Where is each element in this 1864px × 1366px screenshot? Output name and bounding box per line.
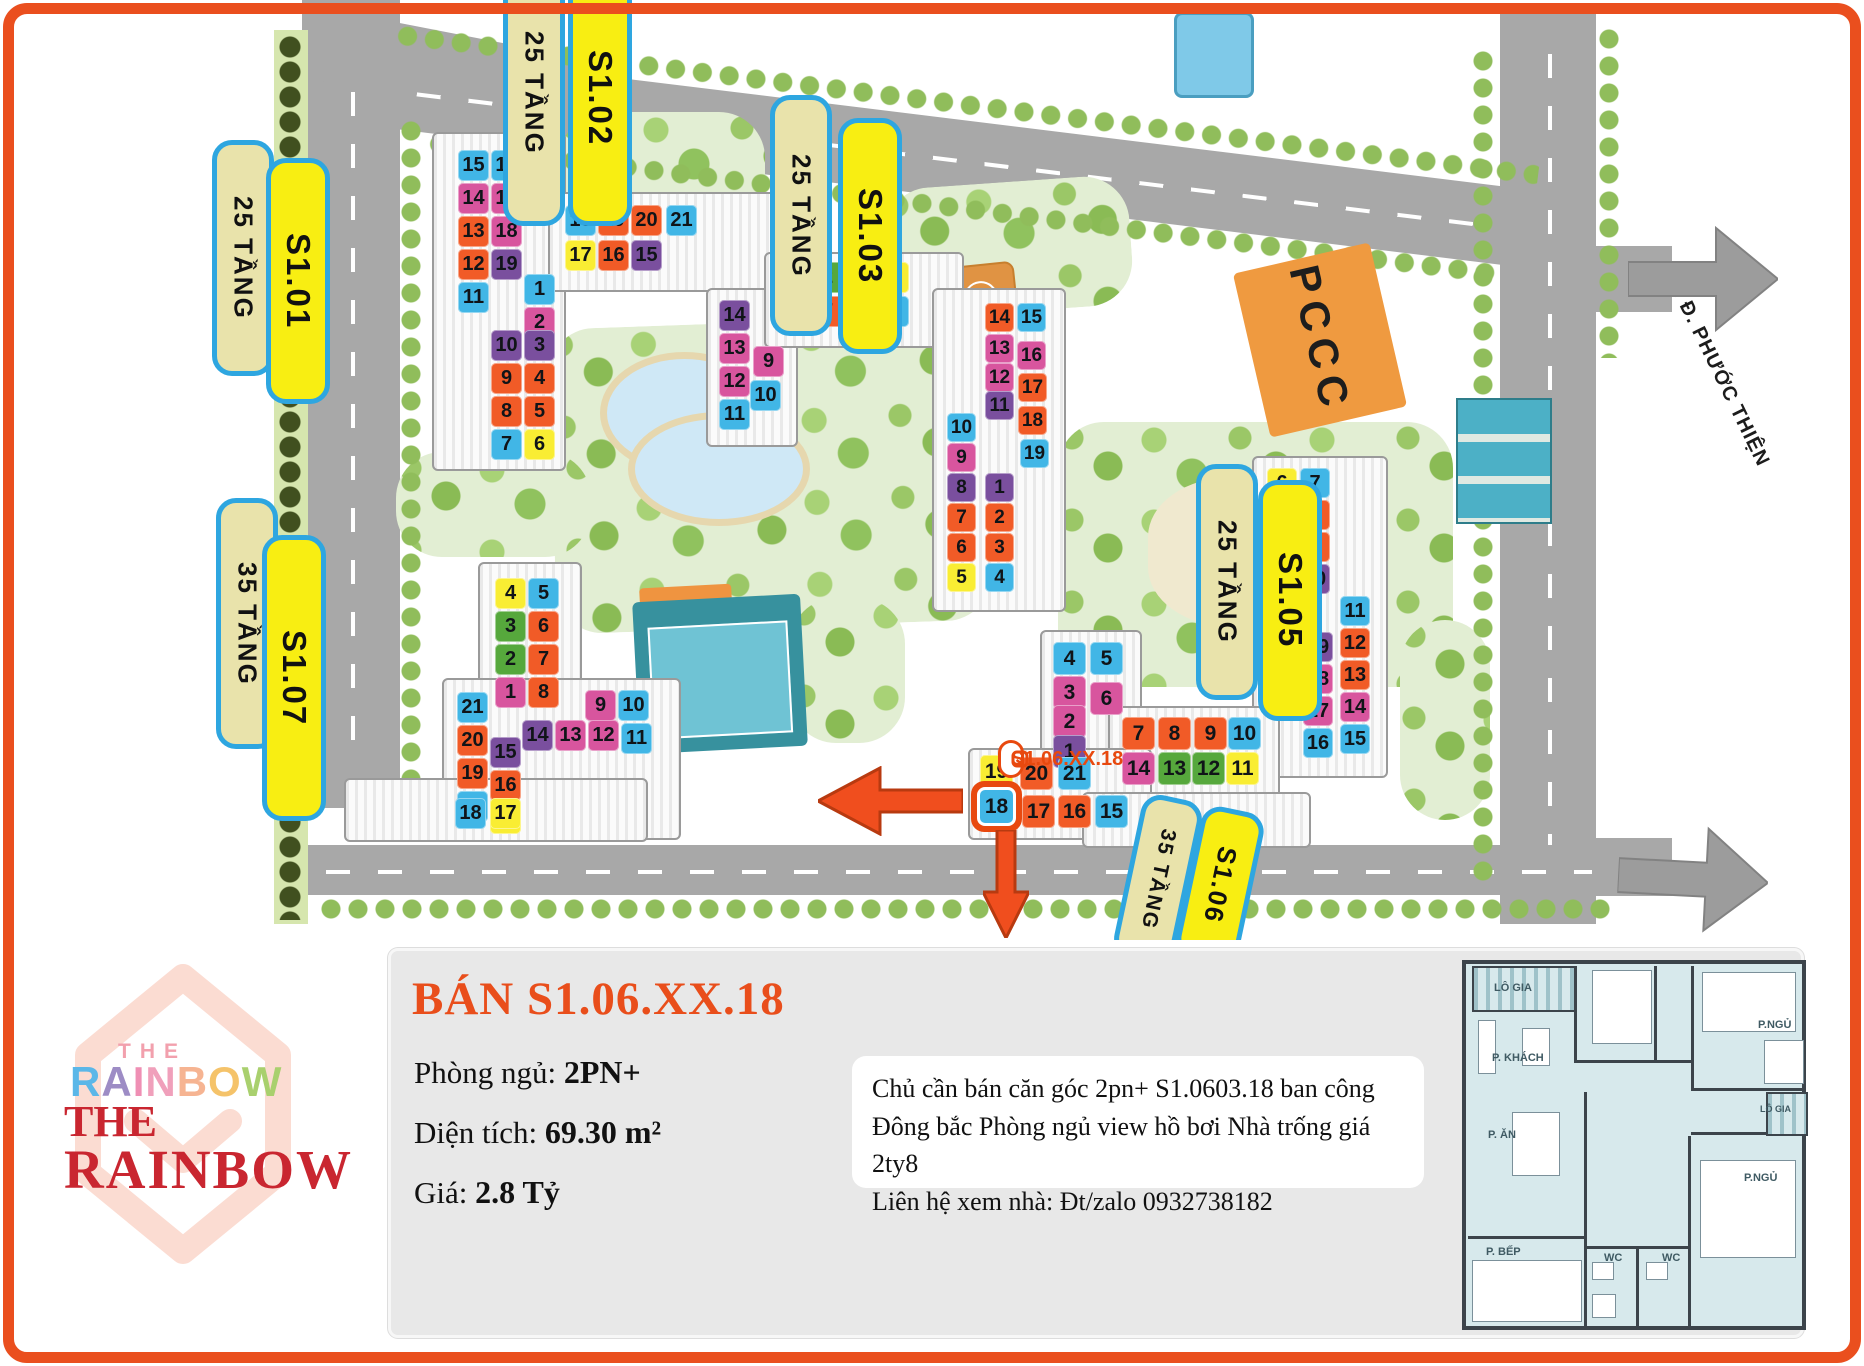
unit-tile-s105-13: 13: [1340, 660, 1370, 690]
unit-tile-s103-14: 14: [985, 303, 1014, 332]
listing-description: Chủ cần bán căn góc 2pn+ S1.0603.18 ban …: [852, 1056, 1424, 1188]
unit-tile-s101-19: 19: [491, 249, 522, 280]
wardrobe: [1764, 1040, 1804, 1084]
room-label: WC: [1662, 1252, 1680, 1264]
unit-tile-s107-2: 2: [495, 644, 526, 675]
unit-tile-s103-15: 15: [1017, 303, 1046, 332]
unit-tile-s107-14: 14: [522, 720, 553, 751]
unit-tile-s107-10: 10: [618, 690, 649, 721]
unit-tile-s102-21: 21: [666, 205, 697, 236]
unit-tile-s101-10: 10: [491, 330, 522, 361]
room-label: P.NGỦ: [1744, 1172, 1777, 1184]
unit-tile-s106-7: 7: [1122, 717, 1155, 750]
unit-tile-s103-7: 7: [947, 503, 976, 532]
unit-tile-s103-9: 9: [947, 443, 976, 472]
road-bottom: [296, 845, 1626, 895]
unit-tile-s106-14: 14: [1122, 752, 1155, 785]
unit-tile-s106-9: 9: [1194, 717, 1227, 750]
unit-tile-s107-12: 12: [588, 720, 619, 751]
washer: [1592, 1294, 1616, 1318]
description-line: Chủ cần bán căn góc 2pn+ S1.0603.18 ban …: [872, 1070, 1404, 1108]
label-s103-floors: 25 TẦNG: [770, 95, 832, 336]
listing-title: BÁN S1.06.XX.18: [412, 972, 785, 1026]
unit-tile-s106-16: 16: [1058, 795, 1091, 828]
wall: [1654, 966, 1657, 1060]
wall: [1584, 1092, 1587, 1330]
spec-value: 2PN+: [564, 1054, 641, 1090]
unit-tile-s103-16: 16: [1017, 341, 1046, 370]
spec-price: Giá: 2.8 Tỷ: [414, 1174, 560, 1211]
unit-tile-s105-14: 14: [1340, 692, 1370, 722]
wall: [1574, 1060, 1694, 1063]
unit-tile-s106-17: 17: [1022, 795, 1055, 828]
logo-letter: W: [242, 1058, 283, 1105]
unit-tile-s103-13: 13: [985, 334, 1014, 363]
room-label: P. BẾP: [1486, 1246, 1521, 1258]
unit-tile-s106-6: 6: [1090, 682, 1123, 715]
spec-label: Giá:: [414, 1175, 467, 1210]
unit-tile-s101-13: 13: [458, 216, 489, 247]
unit-tile-s106-13: 13: [1158, 752, 1191, 785]
tree-line-left-inner: [400, 120, 426, 780]
spec-label: Diện tích:: [414, 1115, 537, 1150]
logo-rainbow-big: RAINBOW: [64, 1138, 353, 1201]
wall: [1691, 1088, 1803, 1091]
unit-tile-s107-9: 9: [585, 690, 616, 721]
description-line: Đông bắc Phòng ngủ view hồ bơi Nhà trống…: [872, 1108, 1404, 1183]
label-s101-floors: 25 TẦNG: [212, 140, 274, 376]
unit-tile-s107-16: 16: [490, 770, 521, 801]
label-s103-name: S1.03: [838, 118, 902, 354]
logo-letter: O: [208, 1058, 242, 1105]
tree-line-bottom: [320, 898, 1610, 922]
room-label: LÔ GIA: [1494, 982, 1532, 994]
unit-tile-s102-14: 14: [719, 300, 750, 331]
unit-tile-s103-4: 4: [985, 563, 1014, 592]
unit-tile-s102-16: 16: [598, 240, 629, 271]
unit-tile-s107-19: 19: [457, 758, 488, 789]
room-label: WC: [1604, 1252, 1622, 1264]
unit-tile-s103-5: 5: [947, 563, 976, 592]
unit-tile-s107-15: 15: [490, 737, 521, 768]
unit-tile-s103-11: 11: [985, 391, 1014, 420]
spec-area: Diện tích: 69.30 m²: [414, 1114, 661, 1151]
room-label: P. KHÁCH: [1492, 1052, 1544, 1064]
bed-middle: [1592, 970, 1652, 1044]
unit-tile-s102-17: 17: [565, 240, 596, 271]
room-label: P. ĂN: [1488, 1129, 1516, 1141]
unit-tile-s101-15: 15: [458, 150, 489, 181]
wall: [1468, 1236, 1584, 1239]
unit-tile-s106-2: 2: [1053, 705, 1086, 738]
unit-tile-s101-6: 6: [524, 429, 555, 460]
balcony-right: [1766, 1092, 1808, 1136]
wall: [1688, 1136, 1691, 1330]
label-s102-floors: 25 TẦNG: [503, 0, 565, 226]
unit-tile-s106-15: 15: [1095, 795, 1128, 828]
unit-tile-s103-10: 10: [947, 413, 976, 442]
unit-tile-s102-20: 20: [631, 205, 662, 236]
unit-tile-s107-4: 4: [495, 578, 526, 609]
unit-tile-s101-5: 5: [524, 396, 555, 427]
unit-tile-s103-12: 12: [985, 363, 1014, 392]
unit-tile-s102-9: 9: [753, 346, 784, 377]
unit-tile-s107-20: 20: [457, 725, 488, 756]
road-dash: [351, 40, 355, 768]
unit-tile-s105-12: 12: [1340, 628, 1370, 658]
unit-tile-s107-6: 6: [528, 611, 559, 642]
unit-tile-s103-1: 1: [985, 473, 1014, 502]
sofa: [1478, 1020, 1496, 1074]
unit-tile-s107-11: 11: [621, 723, 652, 754]
sport-courts-east: [1456, 398, 1552, 524]
logo-letter: B: [177, 1058, 208, 1105]
unit-tile-s107-5: 5: [528, 578, 559, 609]
label-s107-name: S1.07: [262, 535, 326, 821]
floor-plan: LÔ GIAP.NGỦP. KHÁCHLÔ GIAP. ĂNP.NGỦP. BẾ…: [1462, 960, 1806, 1330]
unit-tile-s101-12: 12: [458, 249, 489, 280]
kitchen-counter: [1472, 1260, 1582, 1322]
unit-tile-s1-bottom-18: 18: [455, 798, 486, 829]
unit-tile-s103-8: 8: [947, 473, 976, 502]
unit-tile-s106-18: 18: [980, 790, 1013, 823]
unit-tile-s103-19: 19: [1020, 439, 1049, 468]
wc-fixture: [1592, 1262, 1614, 1280]
unit-tile-s107-13: 13: [555, 720, 586, 751]
unit-tile-s102-12: 12: [719, 366, 750, 397]
site-map: PCCC ĐI Đ. PHƯỚC THIỆN S1.06.XX.18 25 TẦ…: [0, 0, 1864, 940]
unit-tile-s107-3: 3: [495, 611, 526, 642]
unit-marker-label: S1.06.XX.18: [1011, 748, 1123, 771]
label-s105-floors: 25 TẦNG: [1196, 464, 1258, 700]
unit-tile-s101-4: 4: [524, 363, 555, 394]
unit-tile-s103-2: 2: [985, 503, 1014, 532]
road-arrow-bottom-right: [1615, 818, 1771, 940]
label-s101-name: S1.01: [266, 158, 330, 404]
description-line: Liên hệ xem nhà: Đt/zalo 0932738182: [872, 1183, 1404, 1221]
unit-tile-s103-17: 17: [1018, 373, 1047, 402]
room-label: LÔ GIA: [1760, 1104, 1791, 1114]
unit-tile-s101-11: 11: [458, 282, 489, 313]
unit-tile-s106-8: 8: [1158, 717, 1191, 750]
unit-tile-s105-11: 11: [1340, 596, 1370, 626]
unit-tile-s103-3: 3: [985, 533, 1014, 562]
road-dash: [326, 870, 1596, 874]
label-s102-name: S1.02: [568, 0, 632, 226]
spec-value: 69.30 m²: [545, 1114, 661, 1150]
unit-tile-s106-5: 5: [1090, 642, 1123, 675]
unit-tile-s106-11: 11: [1226, 752, 1259, 785]
room-label: P.NGỦ: [1758, 1019, 1791, 1031]
unit-tile-s102-15: 15: [631, 240, 662, 271]
unit-tile-s101-9: 9: [491, 363, 522, 394]
unit-tile-s1-bottom-17: 17: [490, 798, 521, 829]
unit-tile-s101-8: 8: [491, 396, 522, 427]
pccc-label: PCCC: [1280, 261, 1361, 419]
unit-tile-s101-7: 7: [491, 429, 522, 460]
wall: [1636, 1246, 1639, 1330]
unit-tile-s101-1: 1: [524, 274, 555, 305]
sport-court-top-right: [1174, 12, 1254, 98]
highlight-arrow-left: [818, 766, 963, 836]
unit-marker: S1.06.XX.18: [998, 740, 1024, 778]
unit-tile-s106-10: 10: [1228, 717, 1261, 750]
dining-table: [1512, 1112, 1560, 1176]
label-s105-name: S1.05: [1258, 480, 1322, 721]
wc-fixture: [1646, 1262, 1668, 1280]
unit-tile-s106-12: 12: [1192, 752, 1225, 785]
spec-bedrooms: Phòng ngủ: 2PN+: [414, 1054, 641, 1091]
wall: [1691, 966, 1694, 1088]
unit-tile-s102-13: 13: [719, 333, 750, 364]
spec-value: 2.8 Tỷ: [475, 1174, 560, 1210]
park-near-s106: [790, 598, 905, 743]
unit-tile-s102-11: 11: [719, 399, 750, 430]
spec-label: Phòng ngủ:: [414, 1055, 556, 1090]
unit-tile-s107-21: 21: [457, 692, 488, 723]
unit-tile-s107-7: 7: [528, 644, 559, 675]
wall: [1574, 966, 1577, 1062]
unit-tile-s107-8: 8: [528, 677, 559, 708]
tree-line-right-east: [1598, 28, 1624, 358]
unit-tile-s105-15: 15: [1340, 724, 1370, 754]
highlight-arrow-down: [983, 830, 1029, 938]
unit-tile-s103-6: 6: [947, 533, 976, 562]
unit-tile-s107-1: 1: [495, 677, 526, 708]
unit-tile-s103-18: 18: [1018, 406, 1047, 435]
unit-tile-s105-16: 16: [1303, 728, 1333, 758]
road-arrow-top-right: [1628, 222, 1778, 337]
unit-tile-s101-3: 3: [524, 330, 555, 361]
unit-tile-s106-4: 4: [1053, 642, 1086, 675]
unit-tile-s102-10: 10: [750, 380, 781, 411]
unit-tile-s101-14: 14: [458, 183, 489, 214]
